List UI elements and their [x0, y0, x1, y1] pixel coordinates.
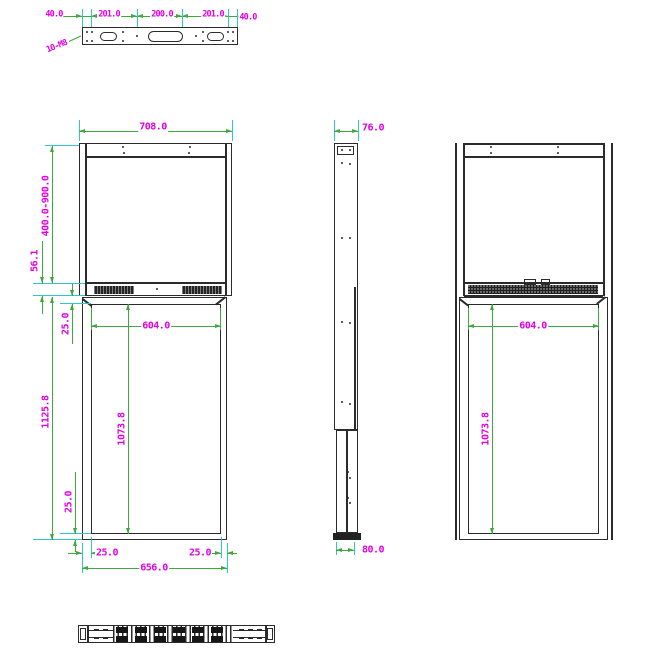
- dim-label: 200.0: [150, 10, 174, 21]
- dim-label: 708.0: [138, 122, 168, 133]
- connector-blocks: [116, 627, 128, 633]
- end-bracket: [267, 628, 273, 640]
- dim-label: 604.0: [141, 321, 171, 332]
- dim-label: 201.0: [97, 10, 121, 21]
- engineering-drawing-canvas: 40.0 201.0 200.0 201.0 40.0 10-M8 708.0: [0, 0, 650, 650]
- dim-label: 25.0: [95, 548, 119, 559]
- dim-label: 1073.8: [117, 411, 128, 446]
- dim-label: 40.0: [44, 10, 63, 21]
- dim-label: 25.0: [64, 490, 75, 514]
- dim-label: 1125.8: [41, 394, 52, 429]
- dim-label: 1073.8: [481, 411, 492, 446]
- vent-dash: [94, 629, 99, 631]
- dim-label: 201.0: [201, 10, 225, 21]
- bracket-line: [87, 625, 89, 643]
- vent-pattern: [113, 626, 233, 642]
- dim-label: 76.0: [361, 123, 385, 134]
- dim-label: 25.0: [61, 312, 72, 336]
- dim-label: 56.1: [30, 249, 41, 273]
- dim-label: 604.0: [518, 321, 548, 332]
- dim-label: 80.0: [361, 545, 385, 556]
- dim-label: 40.0: [238, 13, 257, 24]
- dim-label: 400.0-900.0: [41, 175, 52, 238]
- dim-label: 25.0: [188, 548, 212, 559]
- dim-label: 656.0: [139, 563, 169, 574]
- end-bracket: [80, 628, 86, 640]
